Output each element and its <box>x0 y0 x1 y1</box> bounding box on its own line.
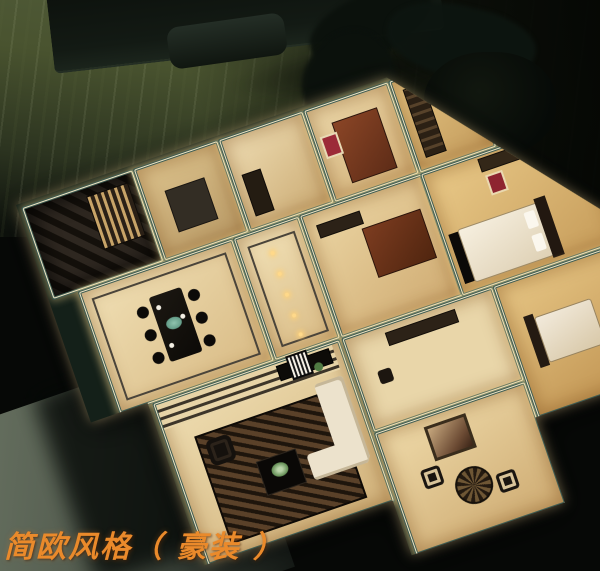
entry-rug <box>164 177 218 232</box>
balcony-chair <box>495 468 520 493</box>
photo-night-scene: 简欧风格（ 豪装 ） <box>0 0 600 571</box>
round-table <box>450 461 498 509</box>
balcony-chair <box>420 465 445 490</box>
red-artwork <box>485 170 509 196</box>
caption-text: 简欧风格（ 豪装 ） <box>4 522 564 566</box>
side-chair <box>377 367 395 385</box>
figure-artwork <box>424 413 477 461</box>
wine-cabinet <box>86 182 146 249</box>
dresser <box>316 210 364 238</box>
bathroom-vanity <box>242 168 275 216</box>
wood-floor <box>362 209 438 278</box>
